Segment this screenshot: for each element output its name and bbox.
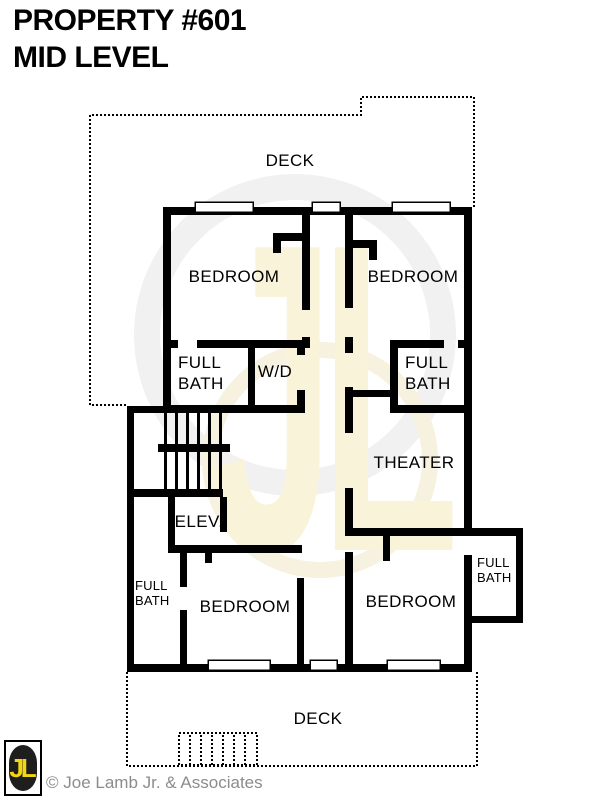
room-label-full-bath-bottom-left: FULL BATH — [135, 578, 170, 608]
jl-logo-monogram: JL — [9, 753, 36, 784]
room-label-elevator: ELEV. — [175, 512, 224, 532]
room-label-theater: THEATER — [374, 453, 455, 473]
room-label-bedroom-top-left: BEDROOM — [189, 267, 280, 287]
room-label-full-bath-left: FULL BATH — [178, 352, 224, 394]
room-label-bedroom-bottom-right: BEDROOM — [366, 592, 457, 612]
copyright-text: © Joe Lamb Jr. & Associates — [46, 773, 263, 793]
jl-logo-pill: JL — [9, 745, 37, 791]
room-label-deck-bottom: DECK — [294, 709, 343, 729]
room-label-bedroom-bottom-left: BEDROOM — [200, 597, 291, 617]
room-label-deck-top: DECK — [266, 151, 315, 171]
room-label-laundry: W/D — [258, 362, 292, 382]
floor-plan-drawing: JL — [0, 0, 600, 800]
jl-logo: JL — [4, 740, 42, 796]
jl-watermark-text: JL — [208, 154, 455, 645]
room-label-full-bath-bottom-right: FULL BATH — [477, 555, 512, 585]
room-label-bedroom-top-right: BEDROOM — [368, 267, 459, 287]
deck-stairs — [179, 733, 257, 765]
room-label-full-bath-right: FULL BATH — [405, 352, 451, 394]
floor-plan-page: PROPERTY #601 MID LEVEL JL — [0, 0, 600, 800]
